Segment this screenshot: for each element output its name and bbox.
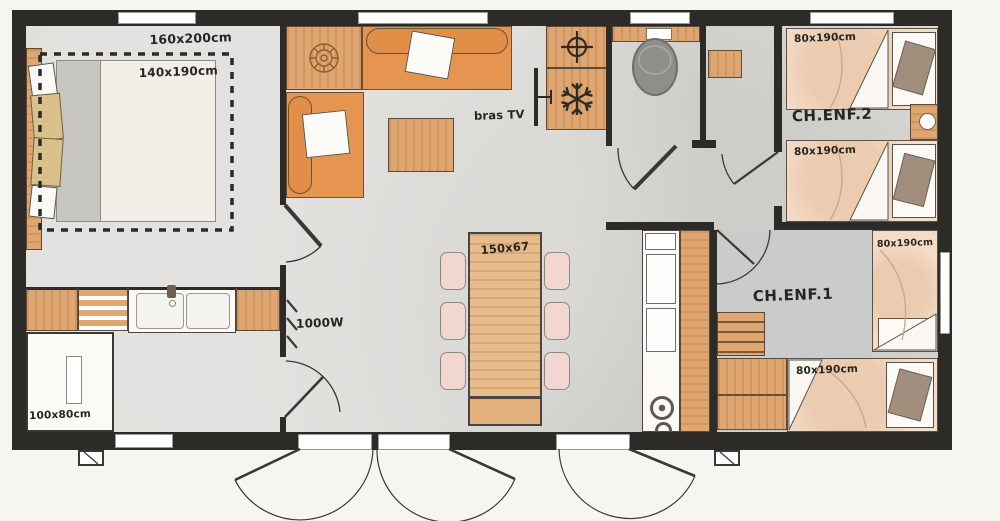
sofa-top-pillow <box>405 30 456 79</box>
door-leaf-entrance-right <box>449 449 515 479</box>
faucet-dot <box>169 300 176 307</box>
master-bed-dim-label: 140x190cm <box>122 64 218 79</box>
wall-left <box>12 10 26 450</box>
dining-table-extension <box>468 398 542 426</box>
sink-bowl-right <box>186 293 230 329</box>
window-top-3 <box>630 12 690 24</box>
floor-plan: 160x200cm 140x190cm bras TV 150x67 1000W… <box>0 0 1000 521</box>
shower-dim-label: 100x80cm <box>29 409 91 422</box>
heater-power-label: 1000W <box>296 316 344 330</box>
wall-wc-cap <box>692 140 716 148</box>
water-heater-cabinet <box>546 26 608 68</box>
coffee-table <box>388 118 454 172</box>
door-arc-entrance-left <box>235 449 373 520</box>
wall-master-upper <box>280 26 286 205</box>
window-top-1 <box>118 12 196 24</box>
lamp-circle-icon <box>919 113 936 130</box>
dining-chair <box>440 352 466 390</box>
door-leaf-kitchen-ext <box>629 449 695 476</box>
door-gap-kitchen <box>556 434 630 450</box>
dining-chair <box>544 302 570 340</box>
dining-chair <box>544 252 570 290</box>
dishwasher <box>646 308 676 352</box>
corridor-shelf <box>708 50 742 78</box>
kitchen-worktop <box>680 230 710 432</box>
window-top-4 <box>810 12 894 24</box>
master-pillow-4 <box>28 185 57 220</box>
fridge-cabinet <box>546 68 608 130</box>
exterior-step-left <box>78 450 104 466</box>
wall-corridor-south-right <box>774 222 938 230</box>
door-arc-entrance-right <box>377 449 515 521</box>
window-right <box>940 252 950 334</box>
master-pillow-3 <box>30 137 63 187</box>
kids1-bed-right-pillow <box>878 318 932 348</box>
kids1-dresser <box>717 312 765 356</box>
wall-wc-left <box>606 26 612 146</box>
oven <box>646 254 676 304</box>
window-top-2 <box>358 12 488 24</box>
exterior-step-right <box>714 450 740 466</box>
vanity-counter-right <box>236 287 280 331</box>
wall-kitchen-kids1 <box>710 230 717 432</box>
vanity-drawers <box>78 287 128 331</box>
kids1-wardrobe-divider <box>718 394 786 396</box>
dining-chair <box>440 302 466 340</box>
wall-right <box>938 10 952 450</box>
kitchen-sink-box <box>645 233 676 250</box>
toilet-bowl <box>632 38 678 96</box>
wall-kids2-upper <box>774 26 782 152</box>
kids2-bed-top-dim-label: 80x190cm <box>794 32 856 45</box>
door-gap-entrance-left <box>298 434 372 450</box>
room-corridor <box>606 146 774 222</box>
master-blanket <box>100 60 216 222</box>
room-entrance-hall <box>286 230 466 432</box>
dining-table <box>468 232 542 398</box>
kids2-room-name: CH.ENF.2 <box>792 107 873 125</box>
corner-table <box>286 26 362 90</box>
kids1-bed-right-dim-label: 80x190cm <box>872 238 938 250</box>
wall-bath-stub <box>280 417 286 432</box>
door-gap-entrance-right <box>378 434 450 450</box>
sofa-left-pillow <box>302 110 350 158</box>
kids2-bed-bottom-dim-label: 80x190cm <box>794 145 856 158</box>
shower-drain-channel <box>66 356 82 404</box>
burner-ring-large <box>650 396 674 420</box>
sink-bowl-left <box>136 293 184 329</box>
vanity-counter-left <box>26 287 78 331</box>
wall-wc-right <box>700 26 706 146</box>
kids1-bed-bottom-dim-label: 80x190cm <box>796 364 858 377</box>
faucet-icon <box>167 285 176 298</box>
dining-chair <box>440 252 466 290</box>
opening-bottom-bath <box>115 434 173 448</box>
master-pillow-2 <box>30 93 64 141</box>
dining-chair <box>544 352 570 390</box>
door-leaf-entrance-left <box>235 449 300 480</box>
tv-bracket-label: bras TV <box>474 109 525 122</box>
wall-master-lower <box>280 265 286 357</box>
wall-corridor-south-left <box>606 222 714 230</box>
door-arc-kitchen-ext <box>559 449 695 518</box>
